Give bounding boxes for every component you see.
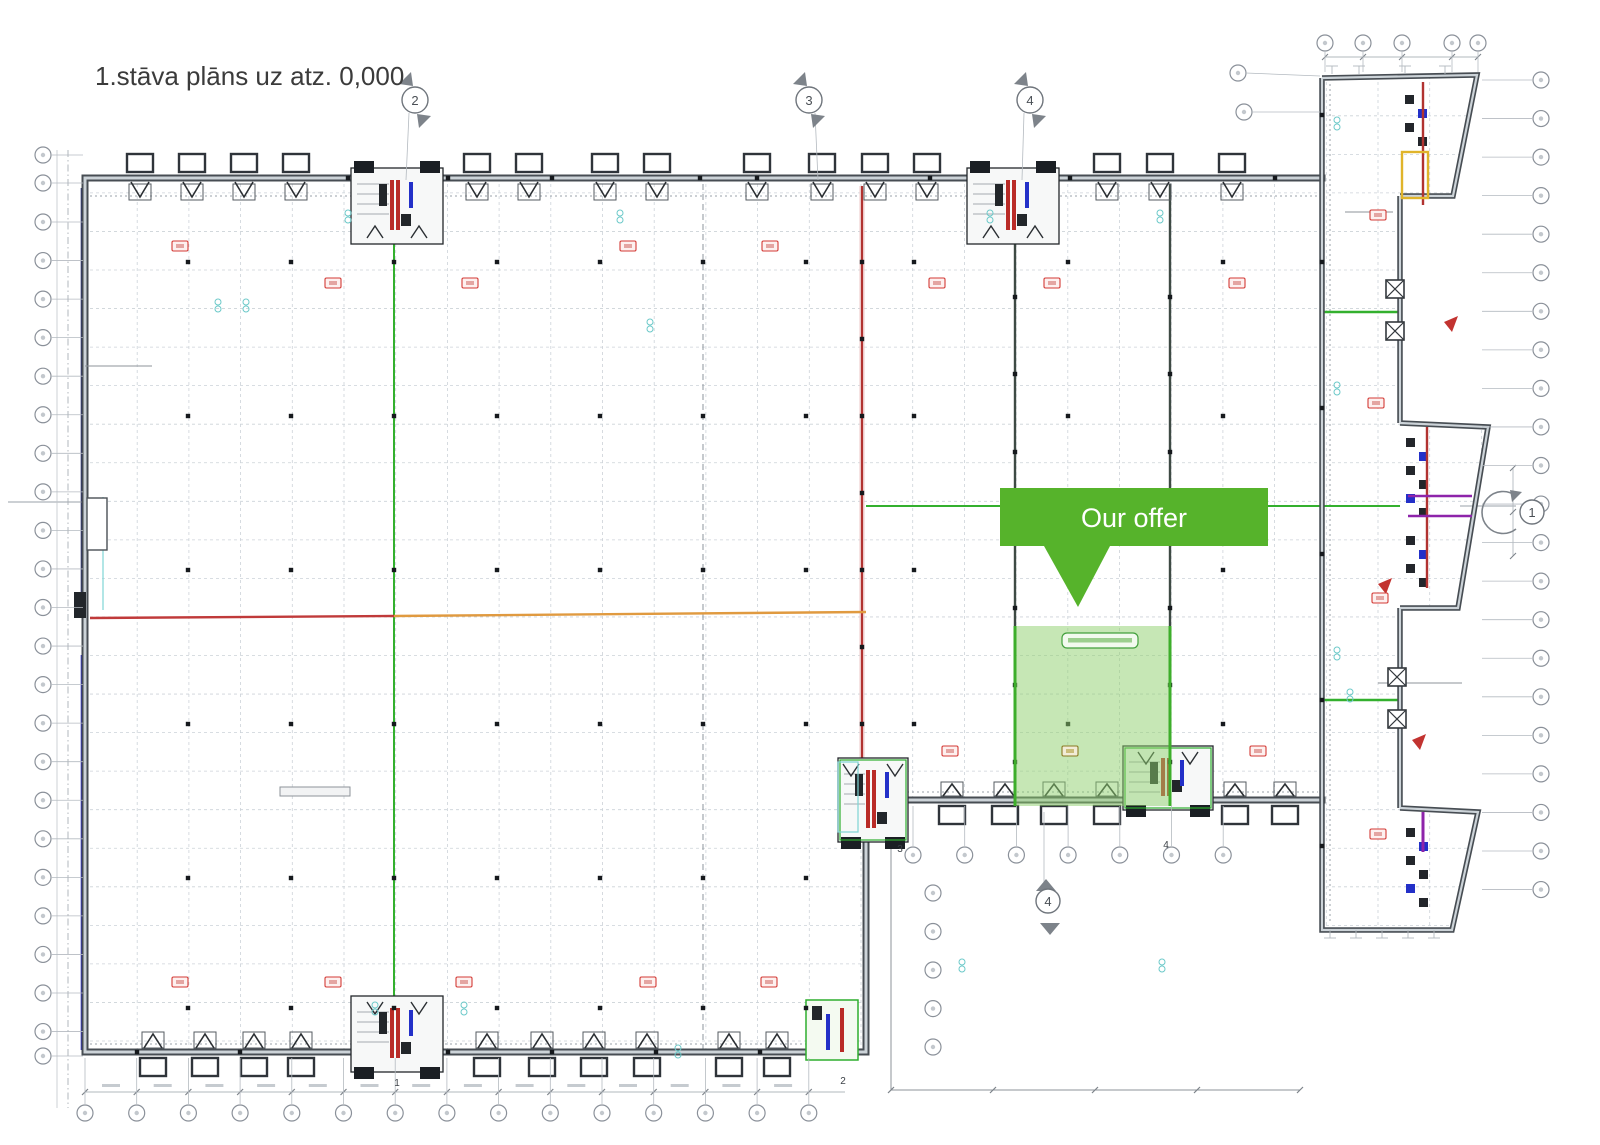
grid-bubble-mark — [1539, 463, 1543, 467]
shelter-block — [354, 161, 374, 173]
shelter-block — [970, 161, 990, 173]
grid-bubble-mark — [393, 1111, 397, 1115]
grid-bubble-mark — [41, 258, 45, 262]
grid-bubble-mark — [1539, 155, 1543, 159]
grid-bubble-mark — [1539, 271, 1543, 275]
utility-mark — [461, 1002, 467, 1008]
grid-bubble-mark — [41, 335, 45, 339]
column-dot — [289, 722, 293, 726]
dock-door — [464, 154, 490, 172]
core-label-1: 1 — [394, 1078, 400, 1089]
grid-bubble-mark — [83, 1111, 87, 1115]
red-riser — [872, 770, 876, 828]
dim-text-smudge — [361, 1084, 379, 1087]
column-dot — [912, 568, 916, 572]
blue-riser — [885, 772, 889, 798]
column-dot — [346, 176, 350, 180]
grid-bubble-mark — [135, 1111, 139, 1115]
grid-bubble-mark — [1539, 579, 1543, 583]
dock-door-chevron — [996, 784, 1014, 796]
grid-bubble-mark — [41, 760, 45, 764]
room-tag-text-smudge — [1372, 401, 1380, 405]
dock-door — [716, 1058, 742, 1076]
column-dot — [289, 568, 293, 572]
grid-bubble-mark — [1539, 232, 1543, 236]
column-dot — [804, 414, 808, 418]
offer-highlight-fill — [1015, 626, 1170, 806]
room-tag-text-smudge — [1048, 281, 1056, 285]
column-dot — [1168, 606, 1172, 610]
column-dot — [1221, 568, 1225, 572]
column-dot — [446, 1050, 450, 1054]
section-marker-2-label: 2 — [411, 93, 418, 108]
stair-core — [838, 758, 908, 849]
grid-bubble-mark — [41, 875, 45, 879]
column-dot — [1066, 260, 1070, 264]
stair-core — [967, 161, 1059, 244]
dock-door — [1041, 806, 1067, 824]
dock-door — [140, 1058, 166, 1076]
dock-door — [1147, 154, 1173, 172]
red-riser — [1012, 180, 1016, 230]
dim-text-smudge — [516, 1084, 534, 1087]
grid-bubble-mark — [1476, 41, 1480, 45]
grid-bubble-mark — [1221, 853, 1225, 857]
red-riser — [840, 1008, 844, 1052]
grid-bubble-mark — [496, 1111, 500, 1115]
utility-mark — [959, 966, 965, 972]
interior-misc-lines — [85, 212, 1462, 1090]
column-dot — [495, 876, 499, 880]
column-dot — [1168, 295, 1172, 299]
column-dot — [186, 722, 190, 726]
room-tag-text-smudge — [1376, 596, 1384, 600]
offer-area-tag-text-smudge — [1068, 638, 1132, 643]
grid-bubble-mark — [1400, 41, 1404, 45]
dock-door-chevron — [943, 784, 961, 796]
room-tag-text-smudge — [1066, 749, 1074, 753]
column-dot — [186, 260, 190, 264]
red-riser — [390, 1008, 394, 1058]
utility-mark — [1157, 210, 1163, 216]
grid-bubble-mark — [1361, 41, 1365, 45]
room-tag-text-smudge — [624, 244, 632, 248]
red-riser — [396, 1008, 400, 1058]
column-dot — [701, 568, 705, 572]
room-tag-text-smudge — [1233, 281, 1241, 285]
utility-mark — [647, 319, 653, 325]
column-dot — [495, 568, 499, 572]
column-dot — [860, 645, 864, 649]
column-dot — [598, 568, 602, 572]
core-label-3: 3 — [897, 844, 903, 855]
column-dot — [1320, 406, 1324, 410]
grid-bubble-mark — [41, 413, 45, 417]
column-dot — [701, 1006, 705, 1010]
column-dot — [928, 176, 932, 180]
column-dot — [495, 1006, 499, 1010]
dark-block — [855, 774, 863, 796]
grid-bubble-mark — [1014, 853, 1018, 857]
utility-mark — [1334, 654, 1340, 660]
dim-text-smudge — [619, 1084, 637, 1087]
dim-text-smudge — [722, 1084, 740, 1087]
dark-block — [1017, 214, 1027, 226]
drawing-grid — [60, 70, 1495, 1055]
column-dot — [701, 722, 705, 726]
orange-service-line — [394, 612, 866, 616]
section-marker-4-bottom: 4 — [1036, 812, 1060, 935]
dock-door — [127, 154, 153, 172]
grid-bubble-mark — [186, 1111, 190, 1115]
column-dot — [495, 260, 499, 264]
grid-bubble-mark — [1066, 853, 1070, 857]
section-marker-4-bottom-label: 4 — [1044, 894, 1051, 909]
room-tag-text-smudge — [1254, 749, 1262, 753]
wall-inner-face — [90, 84, 1330, 1044]
grid-bubble-mark — [1539, 810, 1543, 814]
column-dot — [598, 722, 602, 726]
column-dot — [860, 568, 864, 572]
grid-bubble-mark — [41, 837, 45, 841]
blue-riser — [826, 1014, 830, 1050]
stair-core — [351, 996, 443, 1079]
grid-bubble-mark — [41, 914, 45, 918]
grid-bubble-mark — [1539, 772, 1543, 776]
grid-bubble-mark — [1118, 853, 1122, 857]
utility-mark — [1334, 117, 1340, 123]
dark-block — [995, 184, 1003, 206]
dim-text-smudge — [102, 1084, 120, 1087]
column-dot — [598, 414, 602, 418]
tech-core — [806, 1000, 858, 1060]
room-tag-text-smudge — [329, 281, 337, 285]
dock-door — [231, 154, 257, 172]
column-dot — [392, 414, 396, 418]
utility-mark — [345, 217, 351, 223]
dark-block — [379, 184, 387, 206]
wing-details — [1378, 82, 1472, 852]
utility-mark — [1334, 389, 1340, 395]
grid-bubble-mark — [1539, 733, 1543, 737]
grid-bubble-mark — [1323, 41, 1327, 45]
column-dot — [289, 414, 293, 418]
room-tag-text-smudge — [766, 244, 774, 248]
red-service-line — [90, 616, 394, 618]
dock-door — [939, 806, 965, 824]
wc-fixture — [1406, 564, 1415, 573]
utility-mark — [1159, 966, 1165, 972]
grid-bubble-mark — [1539, 656, 1543, 660]
grid-bubble-mark — [755, 1111, 759, 1115]
grid-bubble-mark — [1539, 695, 1543, 699]
grid-bubble-mark — [41, 374, 45, 378]
dim-text-smudge — [412, 1084, 430, 1087]
dark-block — [877, 812, 887, 824]
column-dot — [238, 1050, 242, 1054]
dock-door — [592, 154, 618, 172]
dock-door — [241, 1058, 267, 1076]
grid-bubble-mark — [931, 929, 935, 933]
stair-cores — [351, 161, 1213, 1079]
grid-bubble-mark — [1236, 71, 1240, 75]
column-dot — [804, 1006, 808, 1010]
column-dot — [392, 260, 396, 264]
utility-mark — [1334, 124, 1340, 130]
column-dot — [186, 568, 190, 572]
column-dot — [1168, 372, 1172, 376]
grid-bubble-mark — [41, 220, 45, 224]
column-dot — [392, 722, 396, 726]
utility-mark — [243, 306, 249, 312]
shelter-block — [420, 1067, 440, 1079]
utility-mark — [617, 210, 623, 216]
room-tags — [172, 117, 1388, 1058]
red-riser — [396, 180, 400, 230]
shelter-block — [1190, 805, 1210, 817]
dock-door — [1094, 806, 1120, 824]
utility-mark — [215, 299, 221, 305]
column-dot — [1221, 722, 1225, 726]
column-dot — [1068, 176, 1072, 180]
column-dot — [1013, 295, 1017, 299]
dock-door — [744, 154, 770, 172]
room-tag-text-smudge — [1374, 213, 1382, 217]
column-dot — [598, 1006, 602, 1010]
grid-bubble-mark — [1539, 425, 1543, 429]
grid-bubble-mark — [911, 853, 915, 857]
dim-text-smudge — [257, 1084, 275, 1087]
utility-mark — [1334, 382, 1340, 388]
column-dot — [860, 491, 864, 495]
room-tag-text-smudge — [946, 749, 954, 753]
dock-door — [1272, 806, 1298, 824]
grid-bubble-mark — [41, 181, 45, 185]
blue-riser — [1180, 760, 1184, 786]
wc-fixture — [1406, 884, 1415, 893]
grid-bubble-mark — [41, 721, 45, 725]
dock-door — [764, 1058, 790, 1076]
dock-door — [644, 154, 670, 172]
column-dot — [392, 568, 396, 572]
column-dot — [912, 722, 916, 726]
wc-fixture — [1405, 123, 1414, 132]
dim-text-smudge — [309, 1084, 327, 1087]
dark-block — [379, 1012, 387, 1034]
room-tag-text-smudge — [176, 244, 184, 248]
grid-bubble-mark — [41, 798, 45, 802]
drawing-title: 1.stāva plāns uz atz. 0,000 — [95, 61, 404, 91]
room-tag-text-smudge — [644, 980, 652, 984]
dock-door — [581, 1058, 607, 1076]
dim-text-smudge — [671, 1084, 689, 1087]
column-dot — [1320, 844, 1324, 848]
dock-door — [1219, 154, 1245, 172]
utility-mark — [215, 306, 221, 312]
wc-fixture — [1406, 536, 1415, 545]
column-dot — [446, 176, 450, 180]
dimension-lines — [57, 54, 1516, 1108]
grid-bubble-mark — [41, 644, 45, 648]
wc-fixture — [1406, 466, 1415, 475]
dark-block — [401, 214, 411, 226]
column-dot — [698, 176, 702, 180]
shelter-block — [354, 1067, 374, 1079]
grid-bubble-mark — [41, 528, 45, 532]
offer-callout-pointer — [1044, 546, 1110, 607]
grid-bubble-mark — [341, 1111, 345, 1115]
left-wall-details — [74, 498, 107, 618]
column-dot — [289, 260, 293, 264]
red-riser — [1006, 180, 1010, 230]
grid-bubble-mark — [1539, 887, 1543, 891]
floor-plan-page: 2 3 4 4 1 1 2 3 4 — [0, 0, 1600, 1145]
grid-bubble-mark — [41, 153, 45, 157]
core-label-4: 4 — [1163, 840, 1169, 851]
column-dot — [1221, 414, 1225, 418]
dock-doors — [127, 154, 1298, 1076]
dock-door — [634, 1058, 660, 1076]
grid-bubble-mark — [600, 1111, 604, 1115]
shelter-block — [841, 837, 861, 849]
column-dot — [1320, 260, 1324, 264]
utility-mark — [959, 959, 965, 965]
grid-bubble-mark — [1539, 78, 1543, 82]
grid-bubble-mark — [963, 853, 967, 857]
grid-bubble-mark — [1539, 193, 1543, 197]
grid-bubble-mark — [41, 567, 45, 571]
column-dot — [758, 1050, 762, 1054]
column-dot — [860, 722, 864, 726]
dock-door — [1222, 806, 1248, 824]
grid-bubble-mark — [445, 1111, 449, 1115]
axis-stem — [1246, 73, 1320, 76]
dock-door — [862, 154, 888, 172]
grid-bubble-mark — [41, 451, 45, 455]
column-dot — [860, 414, 864, 418]
grid-bubble-mark — [41, 605, 45, 609]
grid-bubble-mark — [1539, 849, 1543, 853]
grid-bubble-mark — [238, 1111, 242, 1115]
stair-core — [351, 161, 443, 244]
wing-walls — [1322, 75, 1488, 930]
column-dot — [1320, 698, 1324, 702]
utility-mark — [617, 217, 623, 223]
grid-bubble-mark — [290, 1111, 294, 1115]
dock-door — [283, 154, 309, 172]
wc-fixture — [1405, 95, 1414, 104]
offer-callout: Our offer — [1000, 488, 1268, 607]
blue-riser — [1025, 182, 1029, 208]
utility-mark — [1157, 217, 1163, 223]
dim-text-smudge — [154, 1084, 172, 1087]
dim-text-smudge — [205, 1084, 223, 1087]
wc-fixture — [1406, 856, 1415, 865]
grid-bubble-mark — [703, 1111, 707, 1115]
wc-fixture — [1406, 438, 1415, 447]
grid-bubble-mark — [931, 1045, 935, 1049]
column-dot — [550, 176, 554, 180]
column-dot — [392, 876, 396, 880]
floor-plan-drawing: 2 3 4 4 1 1 2 3 4 — [0, 0, 1600, 1145]
utility-mark — [461, 1009, 467, 1015]
dock-door — [992, 806, 1018, 824]
utility-mark — [243, 299, 249, 305]
column-dot — [1320, 552, 1324, 556]
column-dot — [1273, 176, 1277, 180]
column-dot — [701, 260, 705, 264]
offer-callout-label: Our offer — [1081, 503, 1187, 533]
grid-bubble-mark — [41, 991, 45, 995]
blue-riser — [409, 182, 413, 208]
column-dot — [912, 414, 916, 418]
column-dot — [1013, 450, 1017, 454]
grid-bubble-mark — [41, 682, 45, 686]
column-dot — [392, 1006, 396, 1010]
wc-fixture — [1419, 870, 1428, 879]
red-riser — [390, 180, 394, 230]
grid-bubble-mark — [41, 1029, 45, 1033]
grid-bubble-mark — [1450, 41, 1454, 45]
column-dot — [701, 876, 705, 880]
dim-text-smudge — [567, 1084, 585, 1087]
shelter-block — [1036, 161, 1056, 173]
room-tag-text-smudge — [176, 980, 184, 984]
grid-bubble-mark — [931, 891, 935, 895]
grid-bubble-mark — [1539, 309, 1543, 313]
dock-door — [192, 1058, 218, 1076]
column-dot — [495, 722, 499, 726]
dim-text-smudge — [464, 1084, 482, 1087]
dock-door — [914, 154, 940, 172]
core-label-2: 2 — [840, 1076, 846, 1087]
dock-door — [529, 1058, 555, 1076]
column-dot — [1221, 260, 1225, 264]
grid-bubble-mark — [548, 1111, 552, 1115]
grid-bubble-mark — [41, 952, 45, 956]
shelter-block — [1126, 805, 1146, 817]
column-dot — [804, 722, 808, 726]
column-dot — [804, 260, 808, 264]
grid-bubble-mark — [1539, 116, 1543, 120]
shelter-block — [420, 161, 440, 173]
dock-door — [1094, 154, 1120, 172]
offer-highlight-area — [1015, 626, 1170, 806]
column-dot — [598, 876, 602, 880]
section-marker-4-top-label: 4 — [1026, 93, 1033, 108]
blue-riser — [409, 1010, 413, 1036]
dark-block — [812, 1006, 822, 1020]
room-tag-text-smudge — [933, 281, 941, 285]
grid-bubble-mark — [1169, 853, 1173, 857]
room-tag-text-smudge — [329, 980, 337, 984]
column-dot — [804, 568, 808, 572]
wc-fixture — [1419, 898, 1428, 907]
section-marker-1-label: 1 — [1528, 505, 1535, 520]
dock-door-chevron — [638, 1034, 656, 1048]
grid-bubble-mark — [1539, 386, 1543, 390]
room-tag-text-smudge — [765, 980, 773, 984]
dark-block — [401, 1042, 411, 1054]
column-dot — [289, 1006, 293, 1010]
utility-mark — [1334, 647, 1340, 653]
dock-door — [809, 154, 835, 172]
dim-text-smudge — [774, 1084, 792, 1087]
column-dots — [135, 113, 1324, 1054]
column-dot — [804, 876, 808, 880]
grid-bubble-mark — [1539, 540, 1543, 544]
utility-mark — [647, 326, 653, 332]
